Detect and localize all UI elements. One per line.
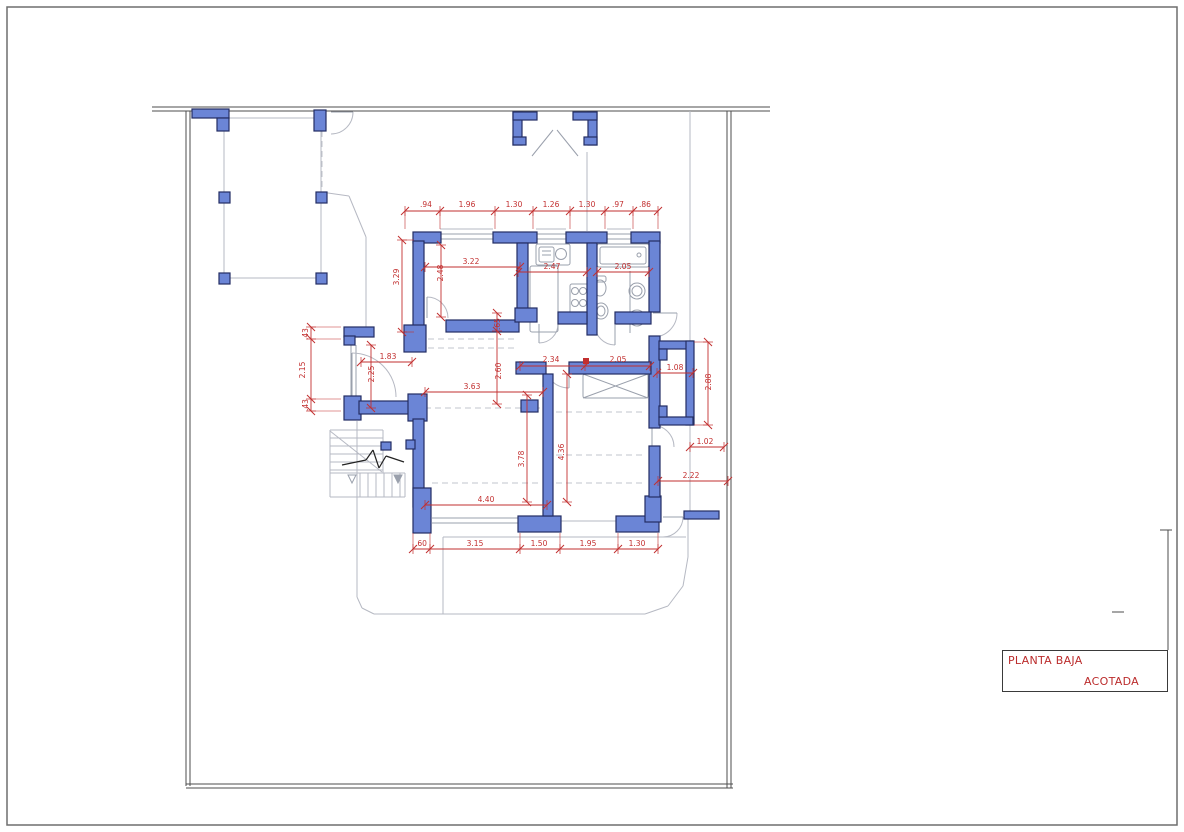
dim-label: 1.30 bbox=[629, 539, 646, 548]
dim-label: 2.22 bbox=[683, 471, 700, 480]
dim-label: 1.08 bbox=[667, 363, 684, 372]
dim-label: 1.26 bbox=[543, 200, 560, 209]
dim-label: .86 bbox=[639, 200, 651, 209]
dim-label: 2.05 bbox=[615, 262, 632, 271]
plan-subtitle: ACOTADA bbox=[1084, 675, 1139, 688]
break-line-and-arrows bbox=[342, 450, 404, 483]
dim-label: 4.36 bbox=[557, 443, 566, 460]
dim-label: 1.95 bbox=[580, 539, 597, 548]
walls bbox=[192, 109, 719, 533]
dim-label: 2.34 bbox=[543, 355, 560, 364]
dim-label: 1.50 bbox=[531, 539, 548, 548]
dim-label: 1.02 bbox=[697, 437, 714, 446]
dim-label: 3.63 bbox=[464, 382, 481, 391]
dim-label: 2.88 bbox=[704, 373, 713, 390]
dim-label: 2.15 bbox=[298, 361, 307, 378]
dim-label: 1.96 bbox=[459, 200, 476, 209]
dim-label: .97 bbox=[612, 200, 624, 209]
dim-label: .65 bbox=[493, 318, 502, 330]
plan-title: PLANTA BAJA bbox=[1008, 654, 1083, 667]
dim-label: 1.30 bbox=[506, 200, 523, 209]
dim-label: 2.47 bbox=[544, 262, 561, 271]
dim-label: .43 bbox=[301, 399, 310, 411]
dim-label: .60 bbox=[415, 539, 427, 548]
dim-label: 2.25 bbox=[367, 365, 376, 382]
dim-label: 3.15 bbox=[467, 539, 484, 548]
dim-label: 2.48 bbox=[436, 264, 445, 281]
dim-label: 3.78 bbox=[517, 450, 526, 467]
dim-label: 2.60 bbox=[494, 362, 503, 379]
dim-label: 2.05 bbox=[610, 355, 627, 364]
dim-label: 4.40 bbox=[478, 495, 495, 504]
dim-label: 3.29 bbox=[392, 268, 401, 285]
floor-plan-canvas: .941.961.301.261.30.97.863.222.472.053.2… bbox=[0, 0, 1184, 832]
drawing-sheet: .941.961.301.261.30.97.863.222.472.053.2… bbox=[0, 0, 1184, 832]
dim-label: 1.83 bbox=[380, 352, 397, 361]
title-block: PLANTA BAJA ACOTADA bbox=[1002, 650, 1168, 692]
dim-label: 3.22 bbox=[463, 257, 480, 266]
dim-label: .43 bbox=[301, 328, 310, 340]
dim-label: .94 bbox=[420, 200, 432, 209]
dim-label: 1.30 bbox=[579, 200, 596, 209]
